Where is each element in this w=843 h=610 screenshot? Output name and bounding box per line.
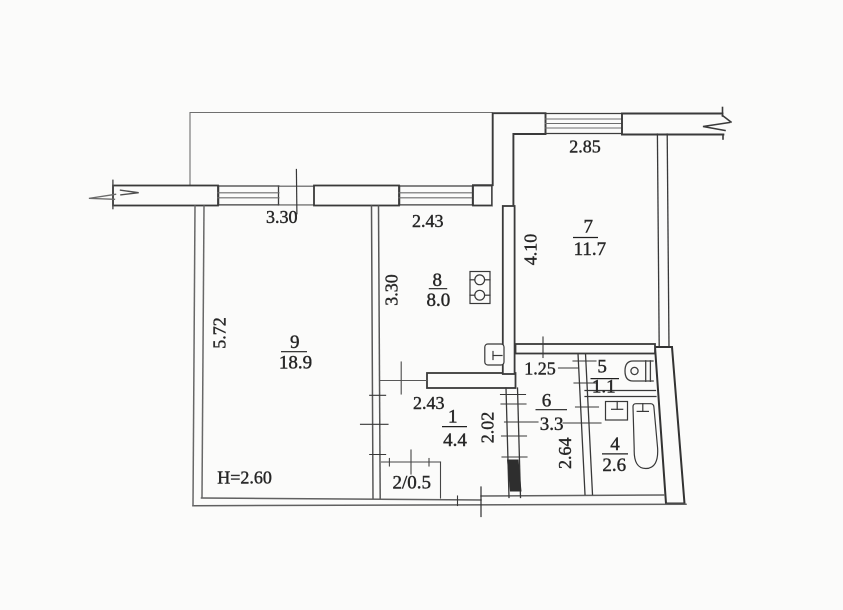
- svg-text:H=2.60: H=2.60: [217, 468, 272, 488]
- svg-text:18.9: 18.9: [279, 353, 312, 374]
- svg-text:2.02: 2.02: [477, 412, 497, 444]
- svg-text:11.7: 11.7: [574, 239, 607, 260]
- svg-text:4.4: 4.4: [443, 430, 467, 451]
- svg-text:9: 9: [290, 332, 300, 353]
- svg-text:1.1: 1.1: [592, 377, 616, 398]
- svg-text:3.30: 3.30: [266, 207, 298, 227]
- svg-text:5: 5: [597, 357, 607, 378]
- svg-text:4.10: 4.10: [521, 234, 541, 266]
- svg-text:1: 1: [448, 407, 458, 428]
- svg-text:4: 4: [610, 434, 620, 455]
- svg-text:2.85: 2.85: [569, 137, 601, 157]
- svg-text:5.72: 5.72: [210, 317, 230, 349]
- svg-text:1.25: 1.25: [524, 359, 556, 379]
- svg-text:2.43: 2.43: [412, 211, 444, 231]
- svg-text:2.64: 2.64: [555, 437, 575, 469]
- svg-text:2.6: 2.6: [602, 455, 626, 476]
- svg-text:6: 6: [542, 391, 552, 412]
- svg-text:7: 7: [583, 217, 593, 238]
- svg-text:3.3: 3.3: [540, 414, 564, 435]
- svg-text:8: 8: [433, 270, 443, 291]
- svg-text:3.30: 3.30: [382, 274, 402, 306]
- svg-text:2.43: 2.43: [413, 393, 445, 413]
- svg-text:8.0: 8.0: [427, 290, 451, 311]
- svg-text:2/0.5: 2/0.5: [393, 473, 432, 494]
